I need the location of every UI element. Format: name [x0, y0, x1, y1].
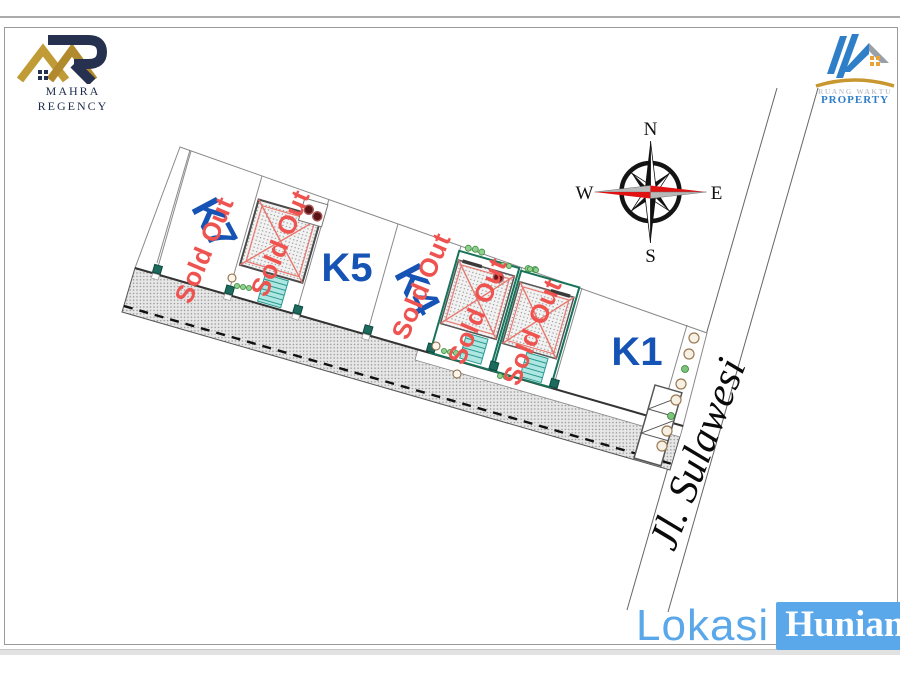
- compass-east-label: E: [711, 183, 723, 204]
- compass-south-label: S: [645, 246, 656, 267]
- footer-brand-part2: Hunian: [776, 602, 900, 650]
- compass-west-label: W: [576, 183, 594, 204]
- footer-brand-part1: Lokasi: [636, 601, 769, 651]
- plot-label-k1: K1: [611, 332, 662, 372]
- plot-label-k5: K5: [321, 248, 372, 288]
- page: MAHRA REGENCY RUANG WAKTU PROPERTY: [0, 0, 900, 675]
- compass-icon: N S W E: [576, 119, 723, 267]
- footer-brand: Lokasi Hunian: [636, 601, 900, 651]
- compass-north-label: N: [644, 119, 658, 140]
